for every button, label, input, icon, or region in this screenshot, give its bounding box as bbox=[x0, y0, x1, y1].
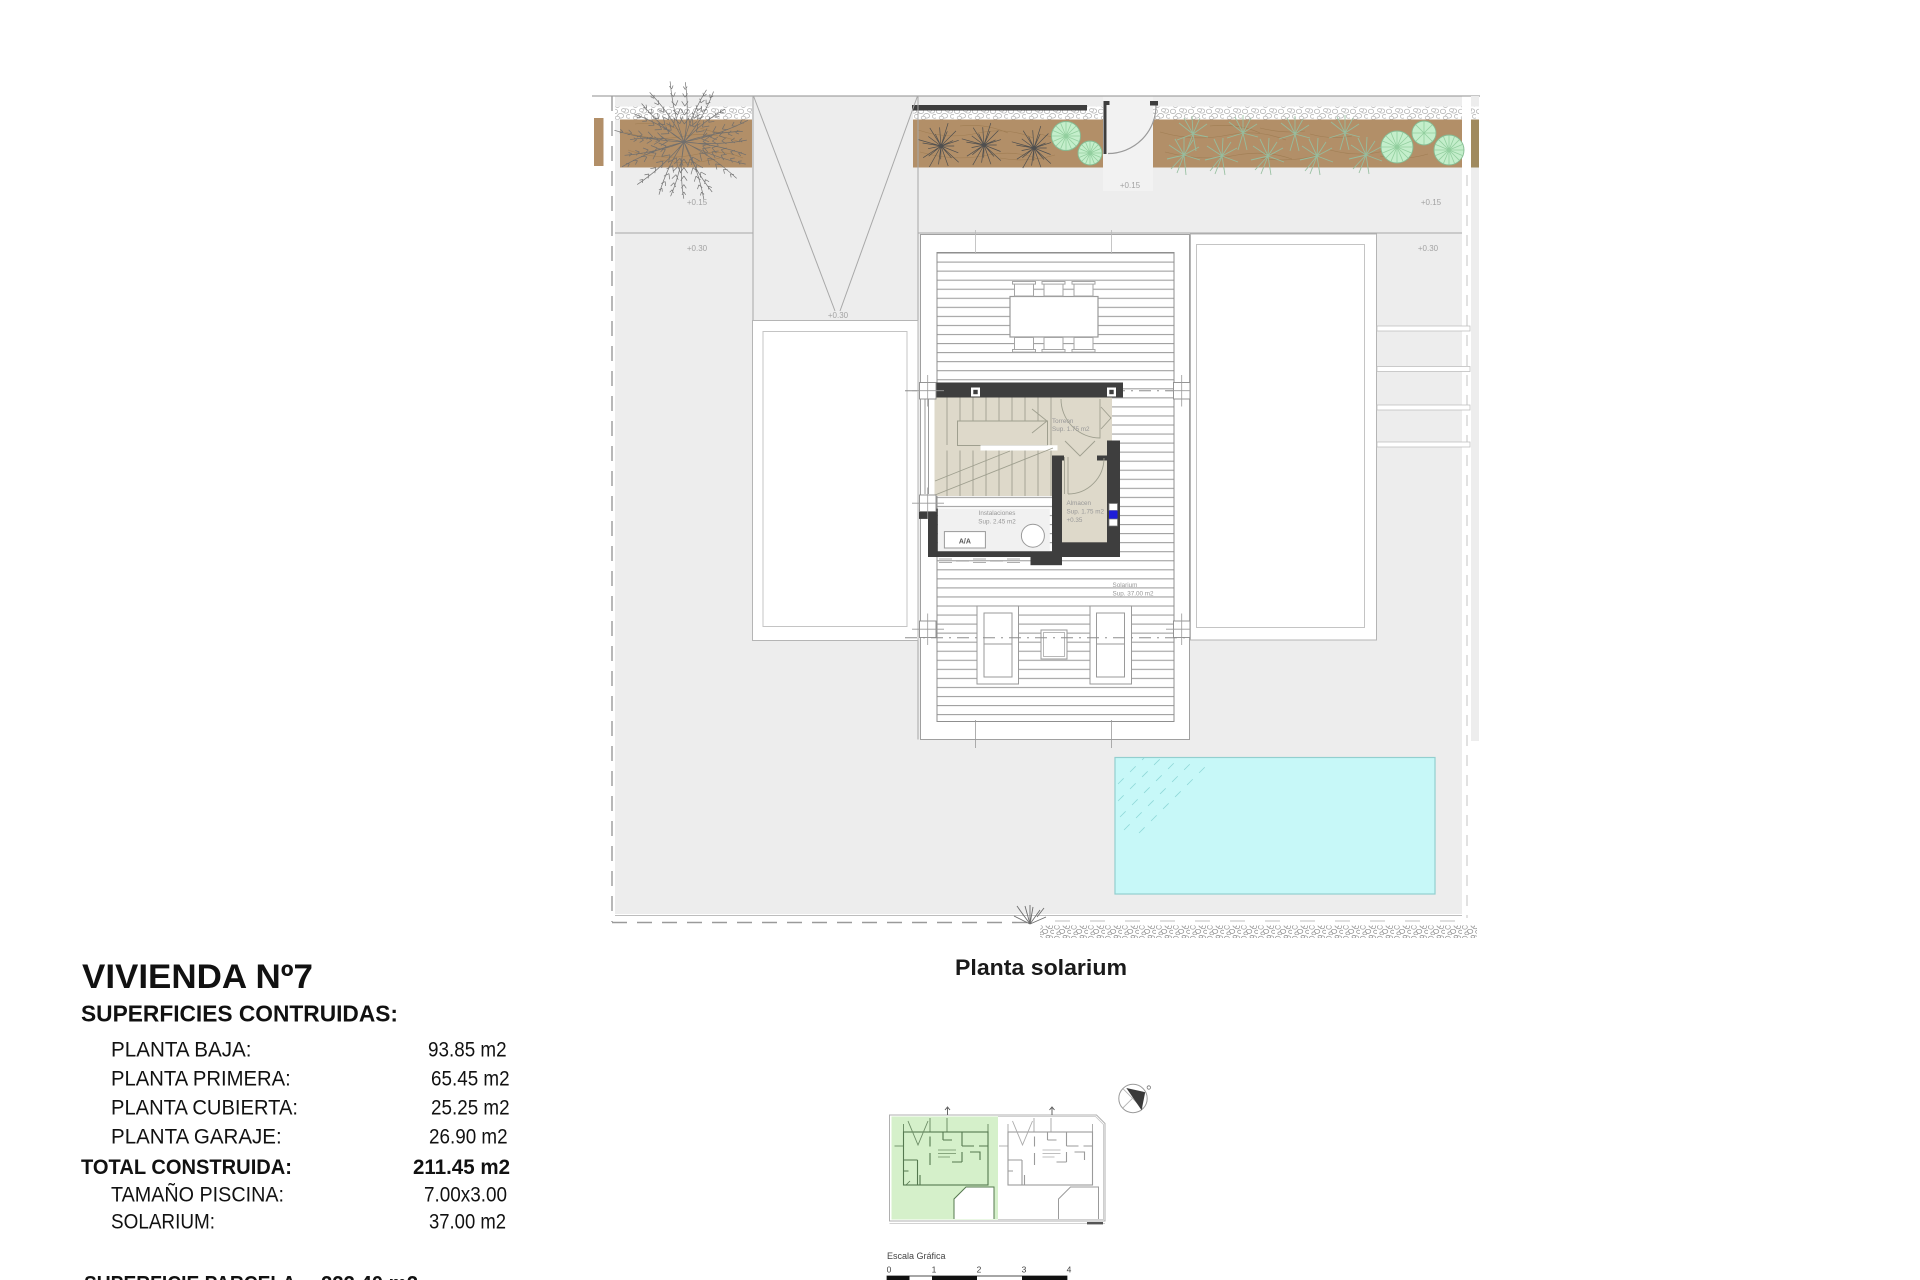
svg-text:7.00x3.00: 7.00x3.00 bbox=[424, 1184, 507, 1207]
svg-text:1: 1 bbox=[932, 1265, 937, 1275]
svg-text:SUPERFICIES CONTRUIDAS:: SUPERFICIES CONTRUIDAS: bbox=[81, 1001, 398, 1027]
svg-text:Escala Gráfica: Escala Gráfica bbox=[887, 1251, 946, 1261]
svg-text:Almacen: Almacen bbox=[1067, 500, 1092, 507]
svg-text:TOTAL CONSTRUIDA:: TOTAL CONSTRUIDA: bbox=[81, 1156, 292, 1179]
svg-text:TAMAÑO PISCINA:: TAMAÑO PISCINA: bbox=[111, 1183, 284, 1207]
svg-text:VIVIENDA Nº7: VIVIENDA Nº7 bbox=[82, 958, 313, 996]
svg-text:Sup. 1.75 m2: Sup. 1.75 m2 bbox=[1067, 509, 1105, 516]
svg-text:+0.15: +0.15 bbox=[1120, 181, 1141, 190]
svg-text:+0.30: +0.30 bbox=[828, 311, 849, 320]
svg-text:SUPERFICIE PARCELA: SUPERFICIE PARCELA bbox=[84, 1273, 296, 1280]
svg-text:+0.30: +0.30 bbox=[1418, 244, 1439, 253]
svg-text:Planta solarium: Planta solarium bbox=[955, 955, 1127, 980]
svg-text:2: 2 bbox=[977, 1265, 982, 1275]
svg-text:+0.15: +0.15 bbox=[1421, 198, 1442, 207]
svg-text:+0.35: +0.35 bbox=[1067, 517, 1083, 524]
svg-text:222.40 m2: 222.40 m2 bbox=[321, 1273, 418, 1280]
svg-text:Sup. 1.75 m2: Sup. 1.75 m2 bbox=[1052, 426, 1090, 433]
svg-text:+0.30: +0.30 bbox=[687, 244, 708, 253]
svg-text:93.85 m2: 93.85 m2 bbox=[428, 1039, 507, 1062]
svg-text:+0.15: +0.15 bbox=[687, 198, 708, 207]
svg-text:PLANTA BAJA:: PLANTA BAJA: bbox=[111, 1039, 252, 1062]
svg-text:26.90 m2: 26.90 m2 bbox=[429, 1126, 508, 1149]
svg-text:65.45 m2: 65.45 m2 bbox=[431, 1068, 510, 1091]
svg-text:Solarium: Solarium bbox=[1113, 582, 1138, 589]
svg-text:Sup. 37.00 m2: Sup. 37.00 m2 bbox=[1113, 591, 1154, 598]
svg-text:SOLARIUM:: SOLARIUM: bbox=[111, 1211, 215, 1234]
svg-text:PLANTA GARAJE:: PLANTA GARAJE: bbox=[111, 1126, 282, 1149]
svg-text:4: 4 bbox=[1067, 1265, 1072, 1275]
svg-text:PLANTA CUBIERTA:: PLANTA CUBIERTA: bbox=[111, 1097, 298, 1120]
svg-text:A/A: A/A bbox=[959, 539, 971, 546]
svg-text:3: 3 bbox=[1022, 1265, 1027, 1275]
svg-text:37.00 m2: 37.00 m2 bbox=[429, 1211, 506, 1234]
svg-text:0: 0 bbox=[887, 1265, 892, 1275]
svg-text:PLANTA PRIMERA:: PLANTA PRIMERA: bbox=[111, 1068, 291, 1091]
svg-text:Sup. 2.45 m2: Sup. 2.45 m2 bbox=[978, 519, 1016, 526]
svg-text:Instalaciones: Instalaciones bbox=[979, 510, 1016, 517]
svg-text:211.45 m2: 211.45 m2 bbox=[413, 1156, 510, 1179]
svg-text:25.25 m2: 25.25 m2 bbox=[431, 1097, 510, 1120]
svg-text:Torreon: Torreon bbox=[1052, 418, 1074, 425]
